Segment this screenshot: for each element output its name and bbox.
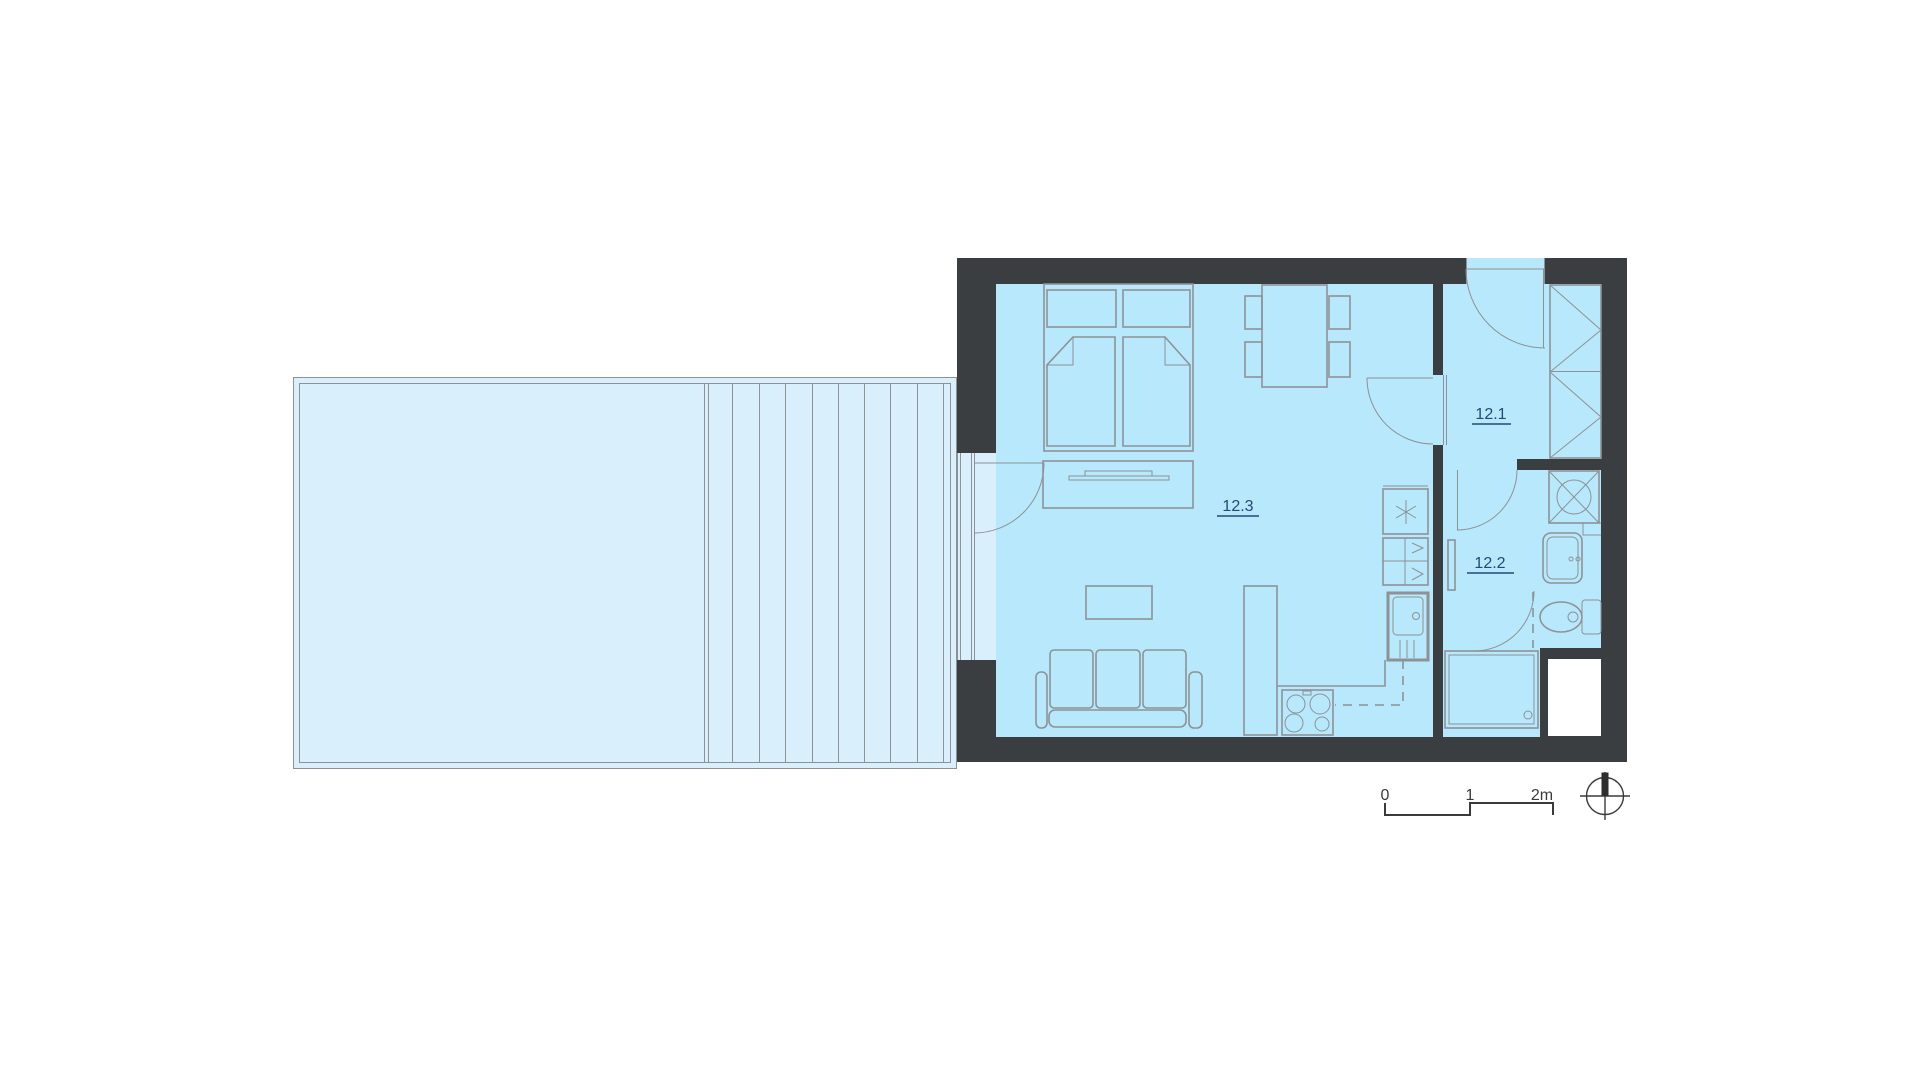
hall-door-opening	[1433, 375, 1443, 445]
wall-bottom	[957, 737, 1627, 762]
wall-right	[1601, 284, 1627, 737]
wall-partition-upper	[1433, 284, 1443, 375]
entrance-door-opening	[1466, 258, 1545, 284]
room-label-12-3: 12.3	[1222, 498, 1253, 515]
room-label-12-2: 12.2	[1474, 555, 1505, 572]
room-12-3-floor	[996, 284, 1433, 737]
scale-bar: 0 1 2m	[1381, 787, 1554, 815]
scale-tick-1: 1	[1466, 787, 1475, 804]
service-shaft	[1548, 659, 1601, 736]
scale-tick-2m: 2m	[1531, 787, 1553, 804]
wall-hall-bath-divider	[1517, 459, 1601, 470]
north-arrow-icon	[1580, 772, 1630, 820]
terrace	[293, 377, 957, 769]
floor-plan-page: 12.1 12.2 12.3 0 1 2m	[0, 0, 1920, 1080]
terrace-floor	[293, 377, 957, 769]
wall-top-left-segment	[957, 258, 1466, 284]
wall-left-upper	[957, 284, 996, 453]
bath-door-opening	[1443, 459, 1517, 470]
scale-tick-0: 0	[1381, 787, 1390, 804]
terrace-door-window-opening	[957, 453, 996, 660]
apartment-floors	[957, 258, 1601, 737]
room-label-12-1: 12.1	[1475, 406, 1506, 423]
wall-partition-lower	[1433, 445, 1443, 737]
floor-plan-drawing: 12.1 12.2 12.3 0 1 2m	[0, 0, 1920, 1080]
scale-bar-line	[1385, 803, 1553, 815]
wall-left-lower	[957, 660, 996, 737]
wall-top-right-segment	[1545, 258, 1627, 284]
